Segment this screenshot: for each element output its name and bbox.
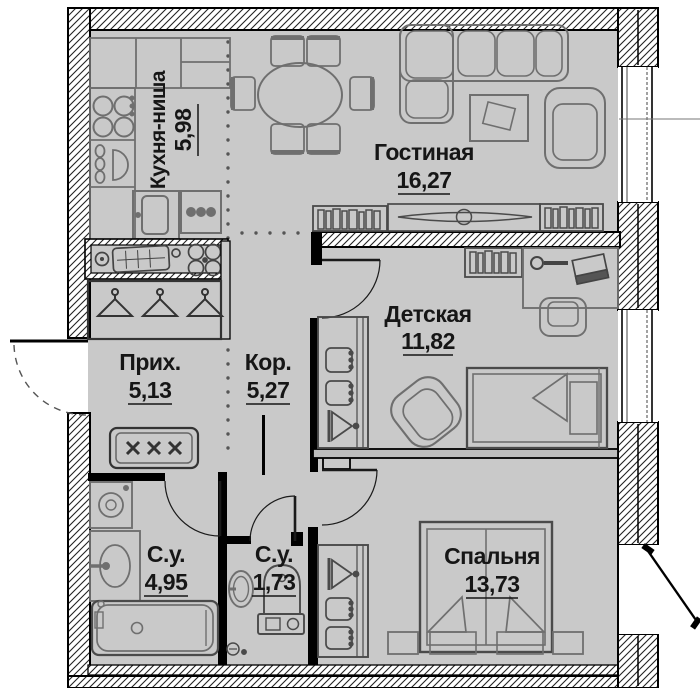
- room-name-bedroom: Спальня: [444, 543, 540, 569]
- room-name-living: Гостиная: [374, 139, 474, 165]
- room-area-hallway: 5,13: [129, 377, 172, 403]
- room-name-hallway: Прих.: [119, 349, 180, 375]
- floor-plan-svg: Кухня-ниша 5,98 Гостиная 16,27 Детская 1…: [0, 0, 700, 688]
- room-name-corridor: Кор.: [245, 349, 292, 375]
- room-name-children: Детская: [384, 301, 471, 327]
- wall-left-lower: [68, 413, 90, 688]
- room-label-wc: С.у. 1,73: [252, 541, 296, 596]
- wall-hall-stub: [262, 415, 265, 475]
- room-name-kitchen: Кухня-ниша: [147, 70, 170, 189]
- room-area-corridor: 5,27: [247, 377, 290, 403]
- wall-bathroom-top: [88, 473, 165, 481]
- room-area-wc: 1,73: [253, 569, 296, 595]
- wall-living-children: [313, 232, 620, 247]
- room-area-bathroom: 4,95: [145, 569, 188, 595]
- room-area-kitchen: 5,98: [170, 108, 196, 151]
- entry-door-swing: [14, 345, 86, 415]
- room-area-bedroom: 13,73: [464, 571, 519, 597]
- kitchen-worktop: [85, 239, 228, 279]
- wall-bottom: [68, 676, 658, 688]
- wall-bottom-inner: [88, 665, 618, 675]
- wall-cap-children-door: [311, 232, 322, 265]
- balcony-door: [618, 543, 700, 634]
- wall-corridor-bedroom: [308, 527, 318, 665]
- floor-plan: Кухня-ниша 5,98 Гостиная 16,27 Детская 1…: [0, 0, 700, 688]
- room-area-living: 16,27: [396, 167, 451, 193]
- room-label-corridor: Кор. 5,27: [245, 349, 292, 404]
- kitchen-side-panel: [221, 241, 230, 339]
- wall-wc-top: [227, 536, 251, 544]
- entry-door: [10, 341, 88, 415]
- wall-children-bedroom: [313, 449, 618, 458]
- room-name-bathroom: С.у.: [147, 541, 185, 567]
- window-living: [618, 67, 700, 202]
- room-name-wc: С.у.: [255, 541, 293, 567]
- room-area-children: 11,82: [401, 328, 455, 354]
- wall-left-upper: [68, 8, 90, 338]
- window-children: [618, 310, 658, 422]
- room-label-bathroom: С.у. 4,95: [144, 541, 188, 596]
